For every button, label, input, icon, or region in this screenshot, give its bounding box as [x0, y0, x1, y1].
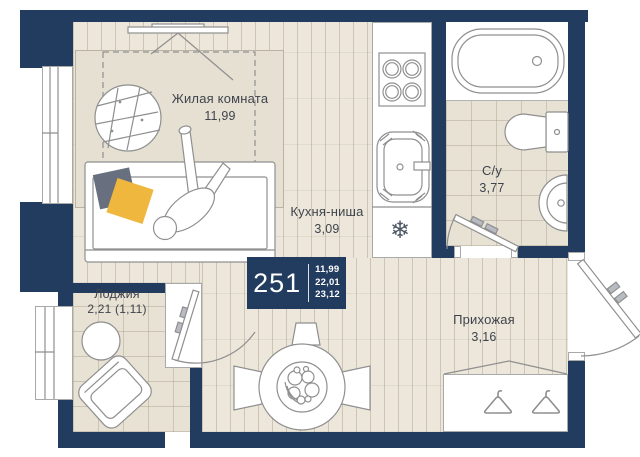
bathtub-strip: [446, 22, 568, 101]
room-name: Лоджия: [87, 286, 146, 302]
fridge-snowflake-icon: ❄: [384, 216, 416, 245]
room-name: Жилая комната: [172, 91, 269, 108]
room-name: Кухня-ниша: [290, 204, 363, 221]
entrance-door-jamb-bottom: [568, 352, 585, 361]
loggia-door-opening: [165, 283, 202, 368]
divider: [308, 264, 309, 302]
room-area: 11,99: [172, 108, 269, 124]
bathroom-door-jamb-left: [454, 246, 461, 258]
wall-loggia-bottom: [58, 432, 165, 448]
room-name: Прихожая: [453, 312, 515, 329]
wall-right-upper: [568, 10, 585, 260]
label-bathroom: С/у 3,77: [479, 163, 504, 196]
unit-info-badge: 251 11,99 22,01 23,12: [247, 257, 346, 309]
wall-bathroom-bottom-left: [432, 246, 454, 258]
unit-number: 251: [253, 268, 301, 299]
room-area: 3,77: [479, 180, 504, 196]
bathroom-door-opening: [454, 246, 518, 258]
wall-bathroom-bottom-right: [518, 246, 568, 258]
floor-bathroom: [446, 100, 568, 246]
entrance-door-jamb-top: [568, 252, 585, 261]
floorplan-canvas: ❄ Жилая комната 11,99 Кухня-ниша 3,09 С/…: [0, 0, 640, 457]
unit-area-living: 11,99: [315, 264, 340, 277]
unit-area-full: 23,12: [315, 289, 340, 302]
wall-left-pier-top: [20, 10, 73, 68]
label-living-room: Жилая комната 11,99: [172, 91, 269, 124]
window-living: [42, 66, 73, 204]
wardrobe: [443, 374, 568, 432]
label-loggia: Лоджия 2,21 (1,11): [87, 286, 146, 318]
room-name: С/у: [479, 163, 504, 180]
room-area: 3,16: [453, 329, 515, 345]
entrance-door: [578, 252, 640, 356]
unit-area-total: 22,01: [315, 277, 340, 290]
wall-left-pier-mid: [20, 202, 73, 292]
label-kitchen: Кухня-ниша 3,09: [290, 204, 363, 237]
window-loggia: [35, 306, 73, 400]
wall-top: [20, 10, 588, 22]
wall-loggia-right: [190, 368, 202, 448]
room-area: 2,21 (1,11): [87, 302, 146, 318]
living-zone: [75, 50, 284, 208]
bathroom-door-jamb-right: [511, 246, 518, 258]
label-hallway: Прихожая 3,16: [453, 312, 515, 345]
room-area: 3,09: [290, 221, 363, 237]
wall-bathroom-left: [432, 22, 446, 258]
wall-bottom: [190, 432, 585, 448]
